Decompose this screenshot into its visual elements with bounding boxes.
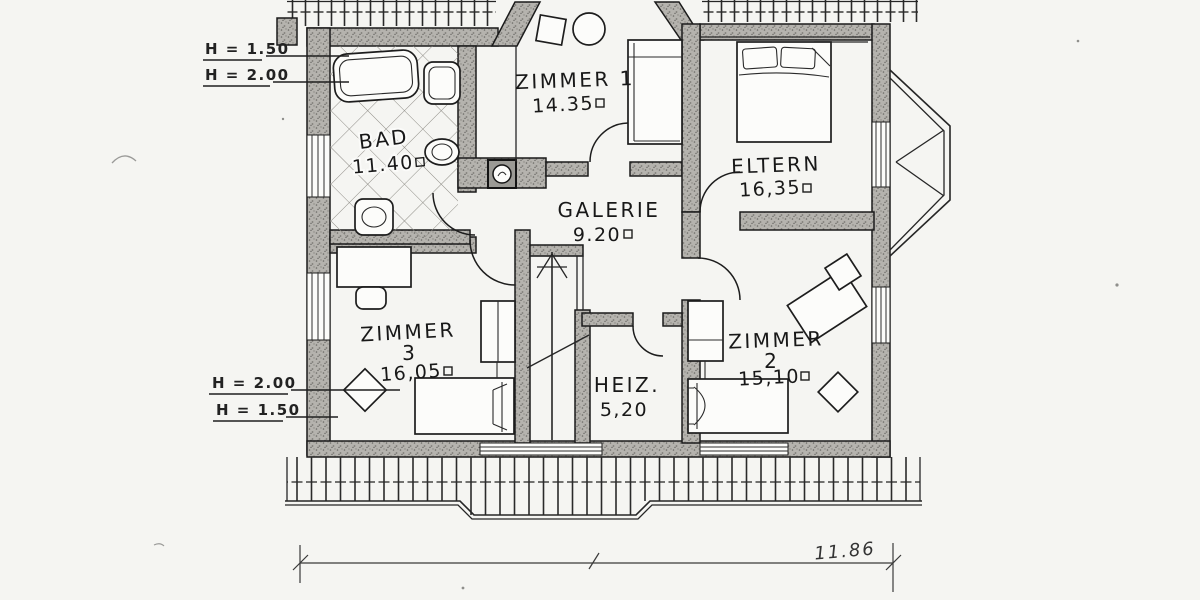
room-label-eltern: ELTERN [731, 151, 822, 178]
right-window-1 [872, 122, 890, 187]
room-label-zimmer1: ZIMMER 1 [515, 66, 635, 94]
zimmer1-bottom-wall-b [630, 162, 682, 176]
height-mark-bottom-1: H = 2.00 [212, 374, 297, 392]
zimmer1-bottom-wall-a [546, 162, 588, 176]
toilet [355, 199, 393, 235]
room-area-eltern: 16,35 [739, 176, 802, 201]
left-exterior-wall [307, 28, 330, 455]
stair-left-wall [515, 230, 530, 443]
room-area-zimmer1: 14.35 [532, 92, 595, 117]
right-window-2 [872, 287, 890, 343]
chair [536, 15, 566, 45]
floorplan-scan: BAD 11.40 ZIMMER 1 14.35 ELTERN 16,35 GA… [0, 0, 1200, 600]
heiz-top-wall-a [582, 313, 633, 326]
room-area-zimmer3: 16,05 [379, 360, 442, 386]
bathtub [332, 49, 419, 103]
bottom-window-1 [480, 443, 602, 455]
chimney [488, 160, 516, 188]
center-right-wall-upper [682, 24, 700, 212]
bath-sink [424, 62, 460, 104]
heiz-top-wall-b [663, 313, 682, 326]
room-area-galerie: 9.20 [573, 224, 621, 246]
bed [628, 40, 682, 144]
bed [415, 378, 514, 434]
left-window-1 [307, 135, 330, 197]
stair-right-wall [575, 310, 590, 443]
eltern-furniture [737, 42, 831, 142]
stair-top-wall [530, 245, 583, 256]
room-label-heiz: HEIZ. [594, 373, 660, 397]
desk [337, 247, 411, 287]
top-wall-left [307, 28, 498, 46]
room-label-galerie: GALERIE [558, 198, 661, 222]
round-table [573, 13, 605, 45]
center-right-wall-mid [682, 212, 700, 258]
eltern-bottom-wall [740, 212, 874, 230]
desk-chair [356, 287, 386, 309]
double-bed [737, 42, 831, 142]
bottom-window-2 [700, 443, 788, 455]
room-area-heiz: 5,20 [600, 399, 648, 421]
left-window-2 [307, 273, 330, 340]
room-area-zimmer2: 15,10 [738, 365, 801, 390]
bath-basin [425, 139, 459, 165]
right-exterior-wall [872, 24, 890, 457]
